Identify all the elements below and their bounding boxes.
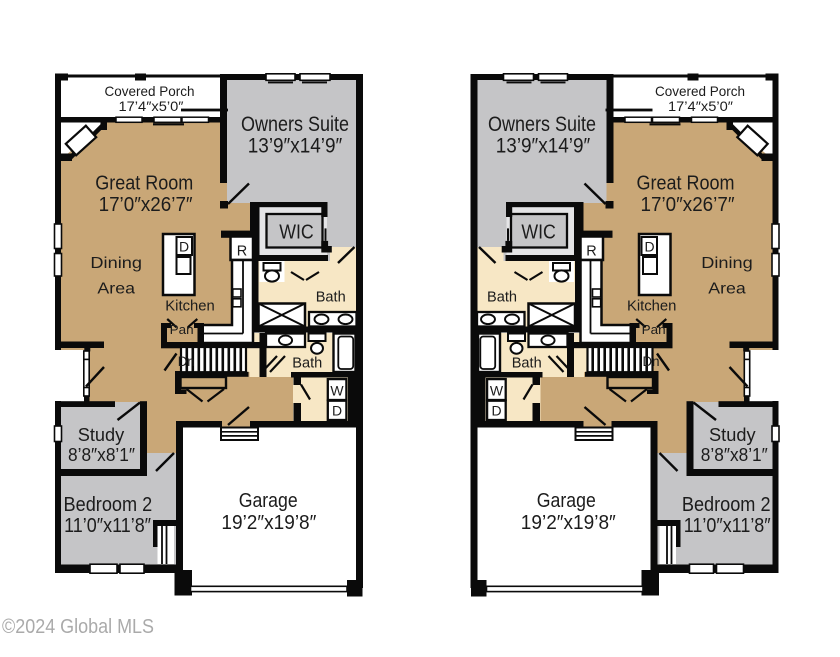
svg-text:W: W (330, 383, 344, 399)
svg-text:WIC: WIC (521, 222, 556, 244)
svg-text:R: R (237, 244, 247, 260)
svg-text:19’2″x19’8″: 19’2″x19’8″ (221, 512, 316, 534)
svg-text:Great Room: Great Room (637, 171, 735, 194)
svg-text:D: D (332, 403, 342, 419)
svg-text:Dn: Dn (178, 354, 195, 369)
svg-text:Dn: Dn (643, 354, 660, 369)
svg-text:Pan: Pan (642, 322, 666, 337)
svg-text:17’4″x5’0″: 17’4″x5’0″ (119, 98, 184, 114)
svg-text:Kitchen: Kitchen (627, 298, 677, 315)
svg-text:Garage: Garage (537, 490, 596, 512)
svg-text:Dining: Dining (701, 255, 753, 272)
svg-text:8’8″x8’1″: 8’8″x8’1″ (701, 445, 769, 465)
svg-text:R: R (586, 244, 596, 260)
svg-text:Bath: Bath (512, 355, 542, 372)
svg-text:Owners Suite: Owners Suite (488, 113, 596, 136)
svg-text:Bath: Bath (487, 289, 517, 306)
svg-text:WIC: WIC (279, 222, 314, 244)
svg-text:Area: Area (708, 280, 746, 297)
svg-text:©2024 Global MLS: ©2024 Global MLS (2, 616, 154, 638)
svg-text:Dining: Dining (90, 255, 142, 272)
svg-text:19’2″x19’8″: 19’2″x19’8″ (521, 512, 616, 534)
svg-text:Study: Study (709, 425, 756, 445)
svg-text:Kitchen: Kitchen (165, 298, 215, 315)
svg-text:Bath: Bath (316, 289, 346, 306)
svg-text:Pan: Pan (170, 322, 194, 337)
svg-text:Covered Porch: Covered Porch (105, 83, 195, 99)
svg-text:Covered Porch: Covered Porch (655, 83, 745, 99)
svg-text:13’9″x14’9″: 13’9″x14’9″ (248, 135, 343, 158)
svg-text:D: D (179, 239, 189, 255)
svg-text:Great Room: Great Room (95, 171, 193, 194)
svg-text:Garage: Garage (239, 490, 298, 512)
svg-text:Owners Suite: Owners Suite (241, 113, 349, 136)
svg-text:17’0″x26’7″: 17’0″x26’7″ (99, 193, 193, 216)
svg-text:Bath: Bath (292, 355, 322, 372)
svg-text:11’0″x11’8″: 11’0″x11’8″ (684, 515, 771, 537)
svg-text:Area: Area (97, 280, 135, 297)
svg-text:8’8″x8’1″: 8’8″x8’1″ (68, 445, 136, 465)
svg-text:D: D (491, 403, 501, 419)
svg-text:Bedroom 2: Bedroom 2 (64, 494, 153, 516)
svg-text:11’0″x11’8″: 11’0″x11’8″ (64, 515, 151, 537)
svg-text:D: D (644, 239, 654, 255)
svg-text:17’0″x26’7″: 17’0″x26’7″ (641, 193, 735, 216)
svg-text:W: W (490, 383, 504, 399)
svg-text:13’9″x14’9″: 13’9″x14’9″ (496, 135, 591, 158)
svg-text:Study: Study (78, 425, 125, 445)
svg-text:Bedroom 2: Bedroom 2 (682, 494, 771, 516)
svg-text:17’4″x5’0″: 17’4″x5’0″ (668, 98, 733, 114)
